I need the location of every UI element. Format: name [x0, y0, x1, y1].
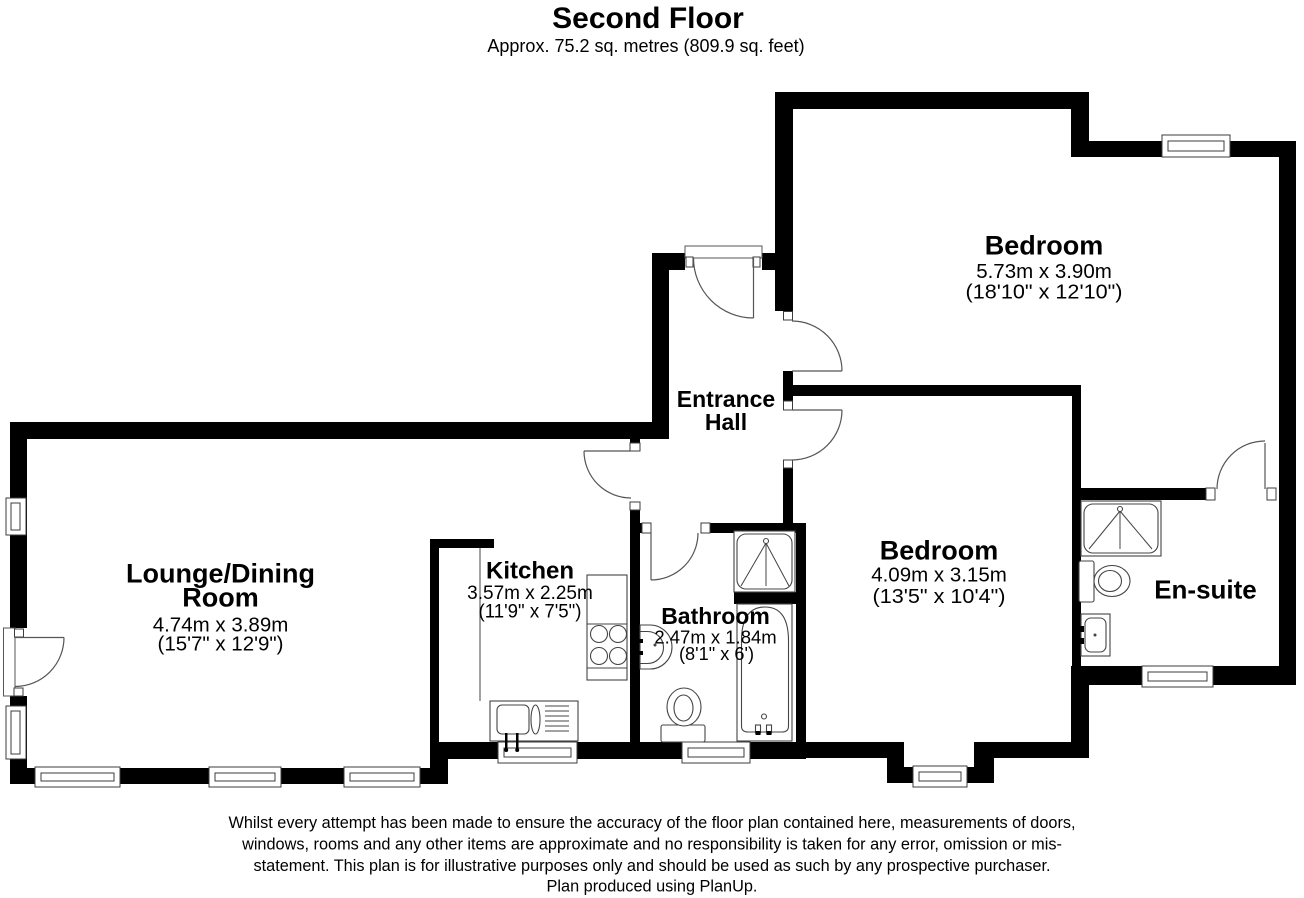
svg-text:Bedroom: Bedroom	[880, 536, 999, 566]
svg-text:Bathroom: Bathroom	[661, 603, 770, 629]
svg-text:4.09m x 3.15m: 4.09m x 3.15m	[871, 564, 1007, 587]
svg-text:windows, rooms and any other i: windows, rooms and any other items are a…	[241, 836, 1062, 854]
svg-text:Approx. 75.2 sq. metres (809.9: Approx. 75.2 sq. metres (809.9 sq. feet)	[487, 36, 804, 56]
svg-text:Second Floor: Second Floor	[552, 2, 744, 35]
svg-text:En-suite: En-suite	[1154, 575, 1257, 605]
svg-text:Bedroom: Bedroom	[985, 231, 1104, 261]
svg-text:statement. This plan is for il: statement. This plan is for illustrative…	[253, 857, 1050, 875]
svg-text:Room: Room	[182, 583, 259, 613]
svg-text:Plan produced using PlanUp.: Plan produced using PlanUp.	[547, 878, 758, 896]
svg-text:(15'7" x 12'9"): (15'7" x 12'9")	[158, 633, 284, 656]
svg-text:(13'5" x 10'4"): (13'5" x 10'4")	[873, 585, 1006, 608]
svg-text:(8'1" x 6'): (8'1" x 6')	[679, 643, 754, 664]
svg-text:Kitchen: Kitchen	[486, 558, 574, 585]
svg-text:(18'10" x 12'10"): (18'10" x 12'10")	[966, 281, 1123, 304]
svg-text:Hall: Hall	[705, 409, 747, 435]
svg-text:Whilst every attempt has been: Whilst every attempt has been made to en…	[228, 814, 1075, 832]
svg-text:(11'9" x 7'5"): (11'9" x 7'5")	[479, 602, 582, 623]
